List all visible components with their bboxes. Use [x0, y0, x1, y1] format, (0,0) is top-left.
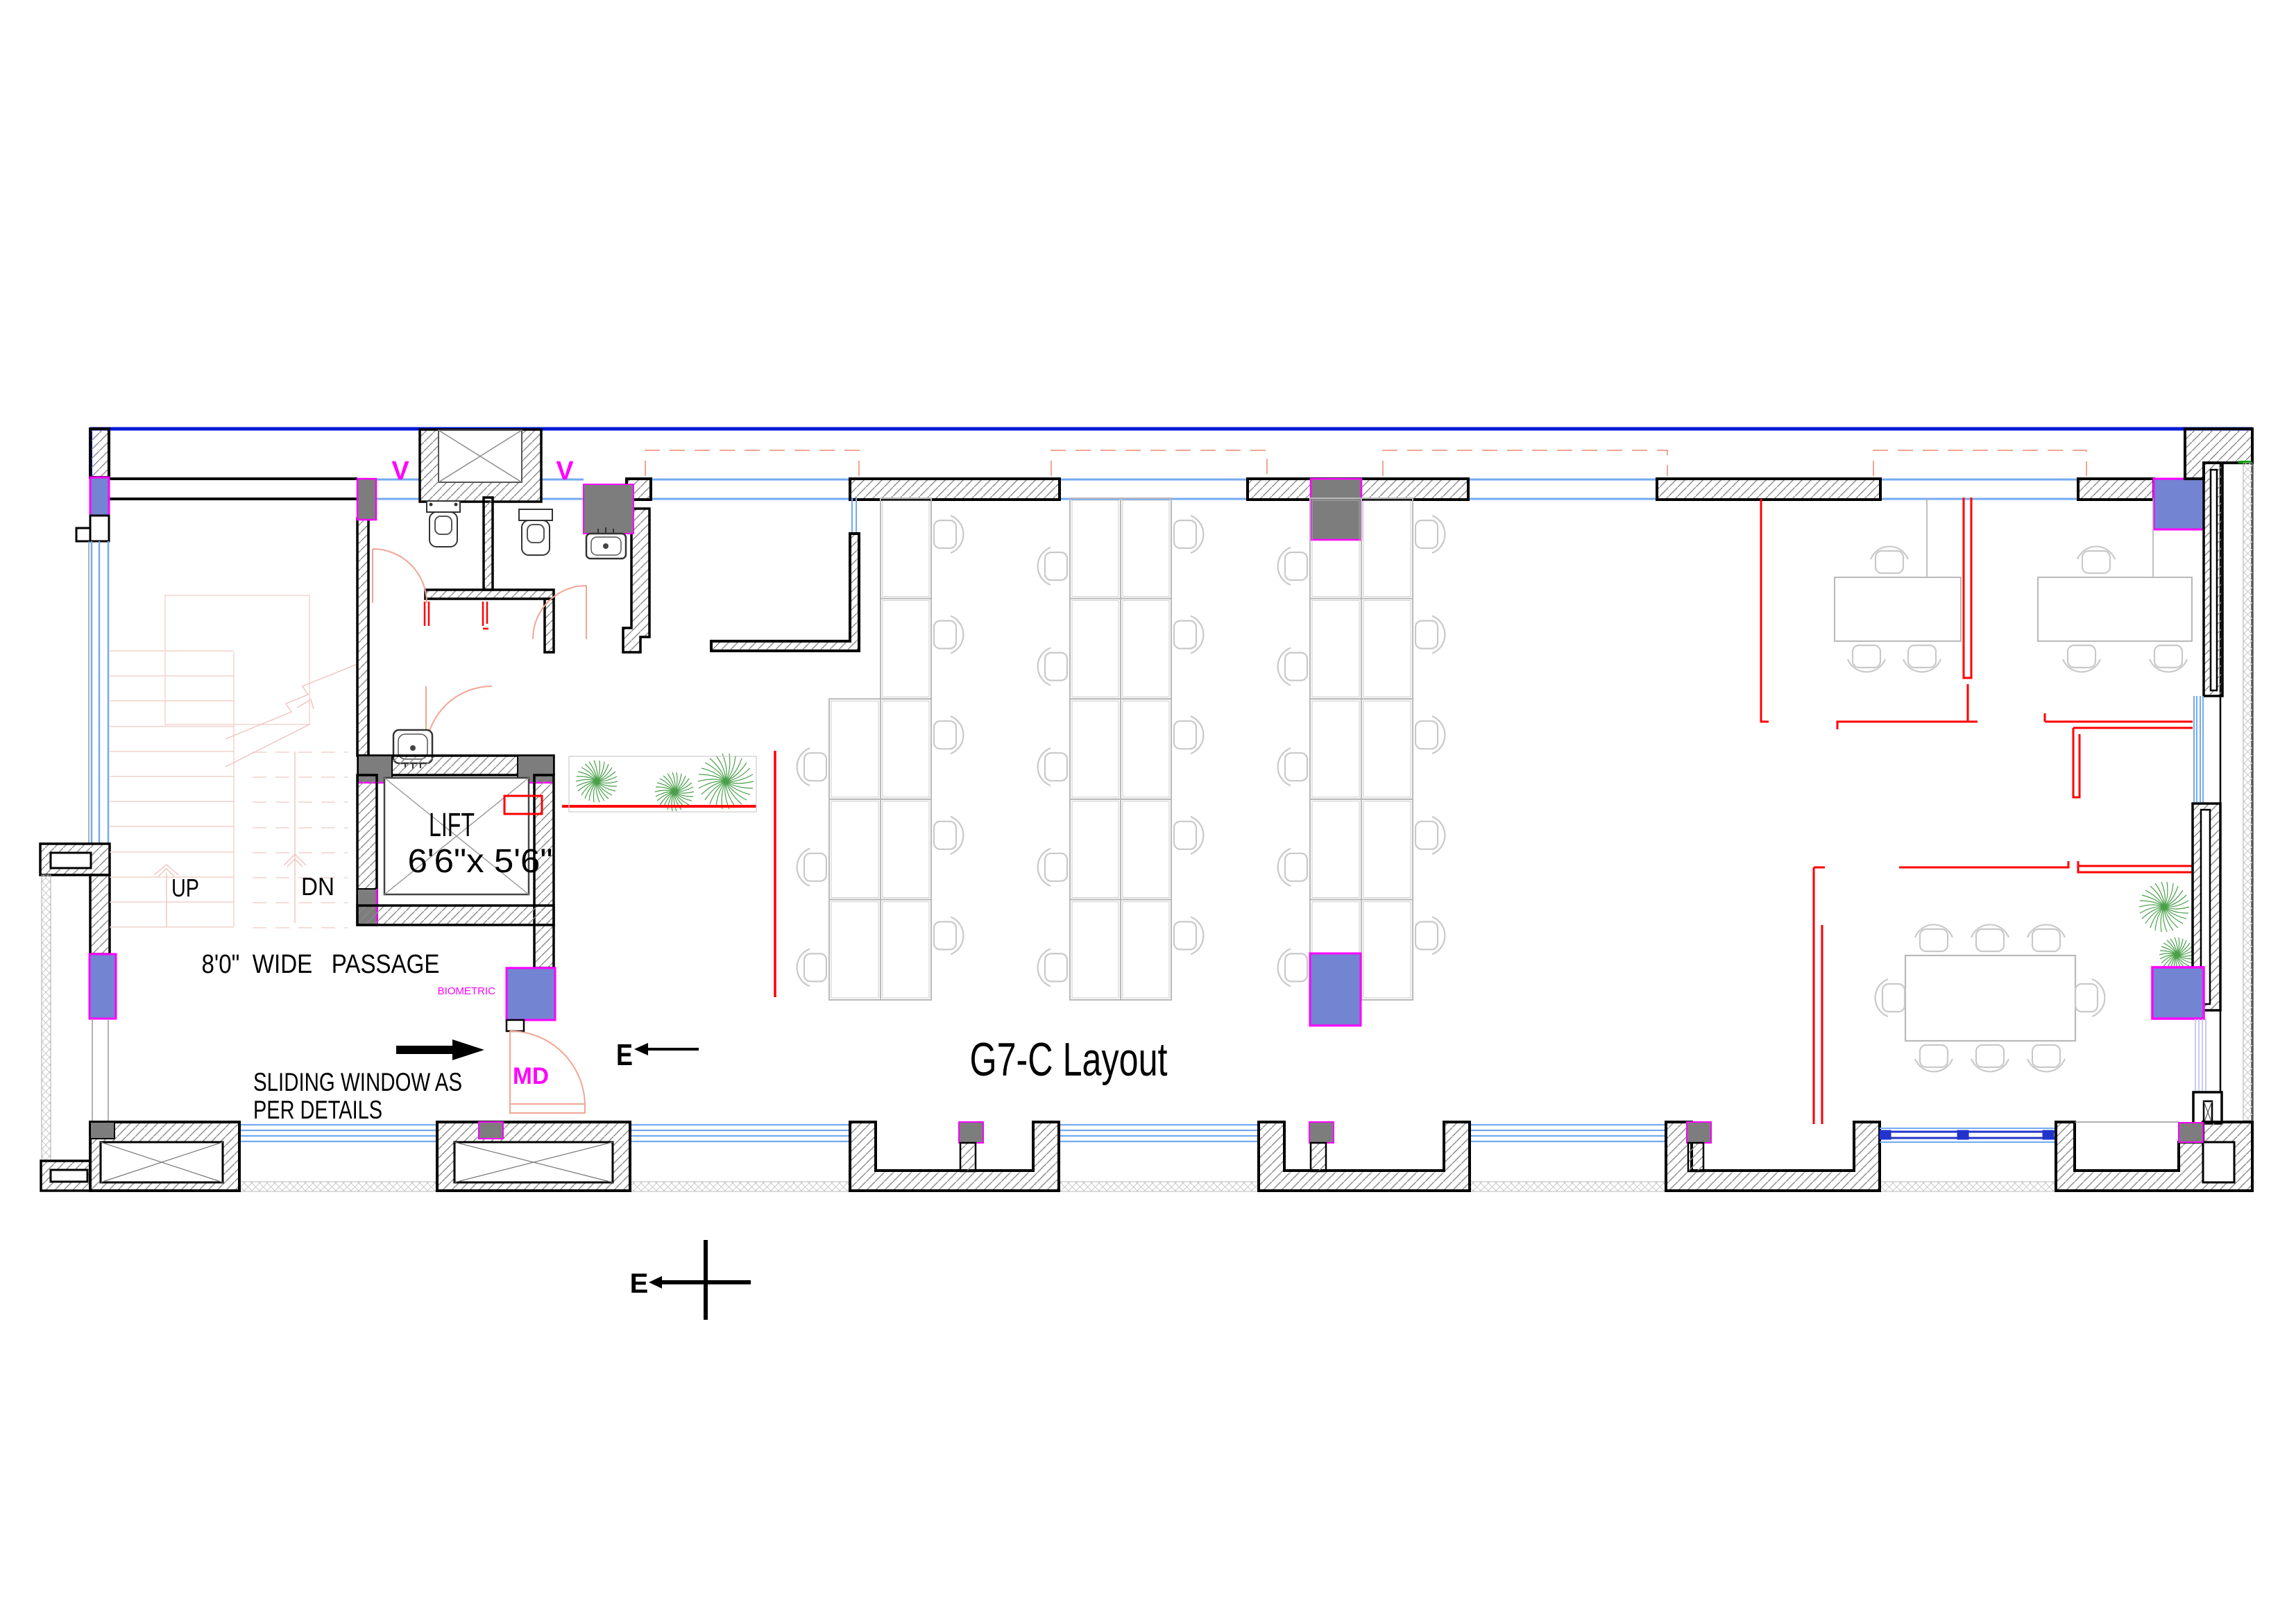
- svg-text:UP: UP: [171, 874, 199, 902]
- svg-text:SLIDING WINDOW AS: SLIDING WINDOW AS: [253, 1068, 462, 1096]
- svg-text:E: E: [630, 1268, 649, 1299]
- svg-text:8'0" WIDE PASSAGE: 8'0" WIDE PASSAGE: [202, 950, 440, 979]
- svg-text:DN: DN: [301, 872, 334, 901]
- svg-text:G7-C Layout: G7-C Layout: [970, 1033, 1168, 1086]
- svg-text:V: V: [556, 457, 574, 486]
- svg-text:BIOMETRIC: BIOMETRIC: [438, 985, 496, 997]
- svg-text:6'6"x 5'6": 6'6"x 5'6": [408, 843, 553, 880]
- svg-text:V: V: [391, 457, 409, 486]
- svg-text:MD: MD: [513, 1063, 549, 1089]
- svg-text:E: E: [616, 1038, 633, 1072]
- svg-text:PER DETAILS: PER DETAILS: [253, 1096, 382, 1124]
- svg-text:LIFT: LIFT: [429, 807, 475, 844]
